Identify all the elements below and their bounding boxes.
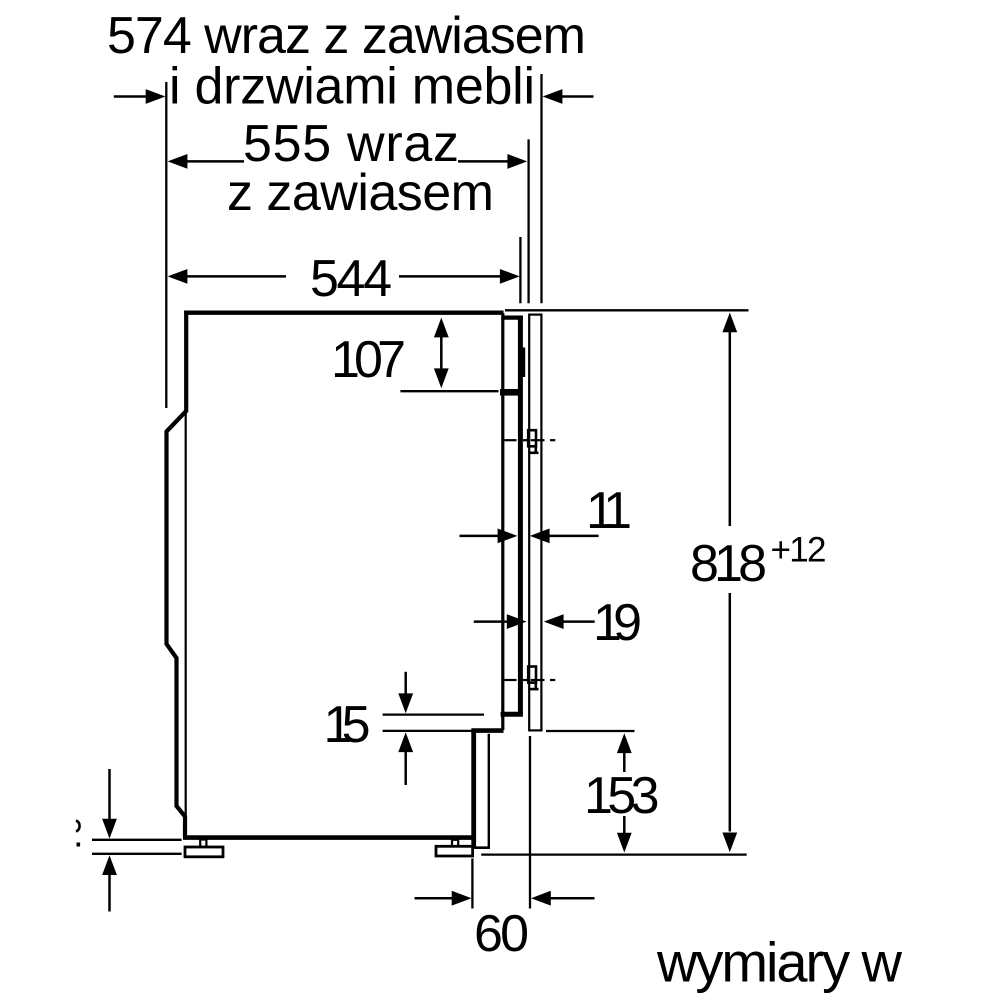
svg-text:544: 544: [310, 250, 392, 308]
svg-text:11: 11: [586, 482, 632, 540]
svg-text:60: 60: [474, 905, 529, 963]
svg-text:19: 19: [593, 594, 642, 652]
svg-text:574 wraz z zawiasem: 574 wraz z zawiasem: [107, 7, 586, 65]
svg-text:+12: +12: [771, 531, 827, 570]
svg-text:wymiary w: wymiary w: [656, 931, 903, 994]
svg-text:153: 153: [584, 767, 660, 825]
svg-text:i drzwiami mebli: i drzwiami mebli: [169, 58, 535, 116]
svg-text:z zawiasem: z zawiasem: [227, 164, 494, 222]
svg-text:818: 818: [690, 535, 767, 593]
svg-text:15: 15: [324, 696, 371, 754]
svg-text:107: 107: [331, 331, 406, 389]
